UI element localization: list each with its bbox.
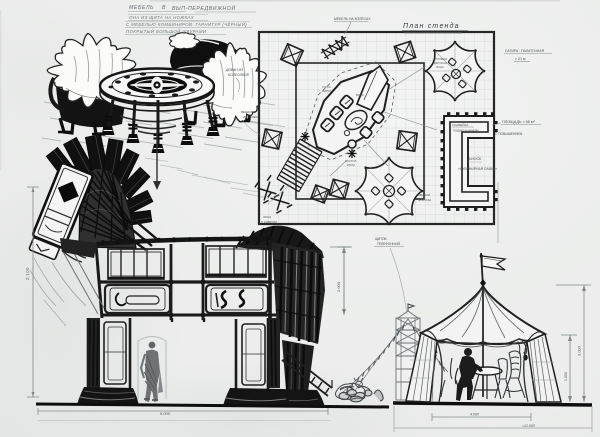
svg-text:ДИВАН ИЗ: ДИВАН ИЗ [225,68,244,72]
svg-text:САТИРА - ПАЛАТОЧНАЯ: САТИРА - ПАЛАТОЧНАЯ [505,49,545,53]
svg-text:ВЫП-ПЕРЕДВИЖНОЙ: ВЫП-ПЕРЕДВИЖНОЙ [172,4,236,12]
svg-text:ЦИРКА: ЦИРКА [322,89,332,93]
svg-text:ЗОНА: ЗОНА [263,215,271,219]
svg-text:1.850: 1.850 [564,372,568,381]
svg-text:4.000: 4.000 [470,413,479,417]
svg-text:ПОДВЕСН.КАЧЕЛИ: ПОДВЕСН.КАЧЕЛИ [453,129,478,133]
svg-text:С КОВРОМ: С КОВРОМ [261,220,277,224]
svg-text:ТЕЛЕФОННЫЙ: ТЕЛЕФОННЫЙ [377,242,401,246]
svg-text:ПЛОЩАДЬ ≈ 65 м²: ПЛОЩАДЬ ≈ 65 м² [502,120,536,124]
svg-text:≈12.000: ≈12.000 [522,424,535,428]
svg-text:ЛАВОЧКИ: ЛАВОЧКИ [416,193,430,197]
svg-text:≈ 21 м: ≈ 21 м [515,57,526,61]
svg-text:ВХОД: ВХОД [356,93,364,97]
svg-text:МЕБЕЛЬ: МЕБЕЛЬ [129,5,154,11]
svg-text:МЕБЕЛЬ НА КОЛЁСАХ: МЕБЕЛЬ НА КОЛЁСАХ [334,17,371,21]
svg-text:2.100: 2.100 [25,267,30,280]
svg-text:План стенда: План стенда [403,22,460,30]
svg-text:С ПОВЫШЕНИЕМ: С ПОВЫШЕНИЕМ [495,132,523,136]
svg-text:8.000: 8.000 [160,411,171,416]
svg-text:ЗОНА: ЗОНА [436,65,444,69]
svg-text:3.000: 3.000 [577,345,582,356]
svg-text:В: В [162,5,166,11]
svg-text:ИГРЫ: ИГРЫ [347,163,355,167]
svg-text:«СУВЕНИРНАЯ ЛАВКА»: «СУВЕНИРНАЯ ЛАВКА» [458,167,497,171]
svg-text:ОНА ИЗ ЩИТА НА НОЖКАХ: ОНА ИЗ ЩИТА НА НОЖКАХ [129,15,194,20]
svg-text:КИОСК: КИОСК [469,157,482,161]
svg-text:ПОКРЫТЫЙ БОЛЬШОЙ ШКУРАМИ: ПОКРЫТЫЙ БОЛЬШОЙ ШКУРАМИ [126,29,207,34]
svg-text:СКАМЕЙКА: СКАМЕЙКА [452,123,468,127]
svg-text:КОЛЕСИКОВ: КОЛЕСИКОВ [228,73,250,77]
svg-text:С МЕБЕЛЬЮ КОМБИНИРОВ. ГАРНИ: С МЕБЕЛЬЮ КОМБИНИРОВ. ГАРНИТУР (ЧЁРНЫЙ) [126,22,247,27]
svg-text:ЩИТОК-: ЩИТОК- [375,237,387,241]
svg-text:ВЕШАЛКА: ВЕШАЛКА [241,110,256,114]
svg-text:2.000: 2.000 [336,281,341,292]
svg-text:ФОРУМА: ФОРУМА [418,198,431,202]
svg-text:ИЗ КОЛЁС: ИЗ КОЛЁС [243,115,259,119]
